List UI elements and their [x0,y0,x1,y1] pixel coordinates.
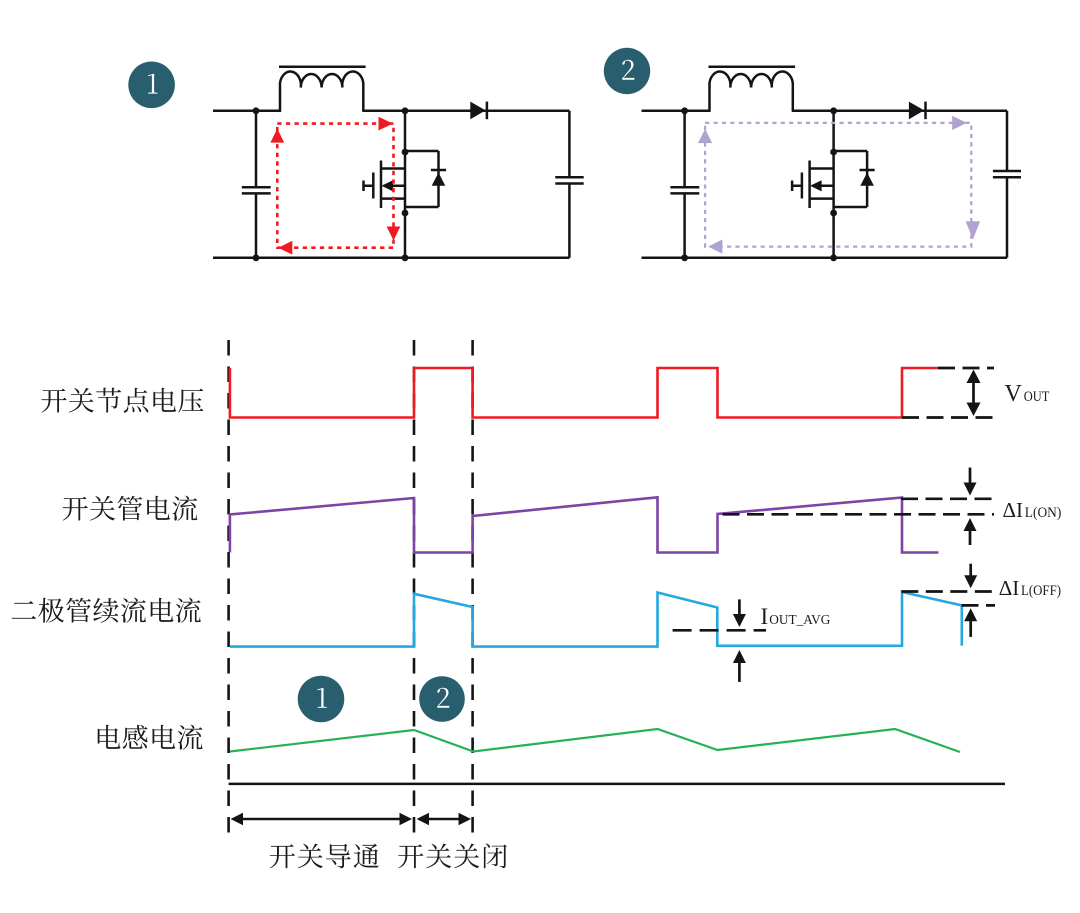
svg-text:ΔI: ΔI [1003,498,1024,522]
svg-text:L(ON): L(ON) [1025,505,1062,521]
svg-text:V: V [1005,381,1023,407]
svg-text:I: I [761,604,769,629]
svg-text:L(OFF): L(OFF) [1021,583,1061,599]
svg-text:OUT: OUT [1024,389,1050,405]
svg-text:ΔI: ΔI [999,576,1020,600]
svg-text:OUT_AVG: OUT_AVG [769,613,830,628]
